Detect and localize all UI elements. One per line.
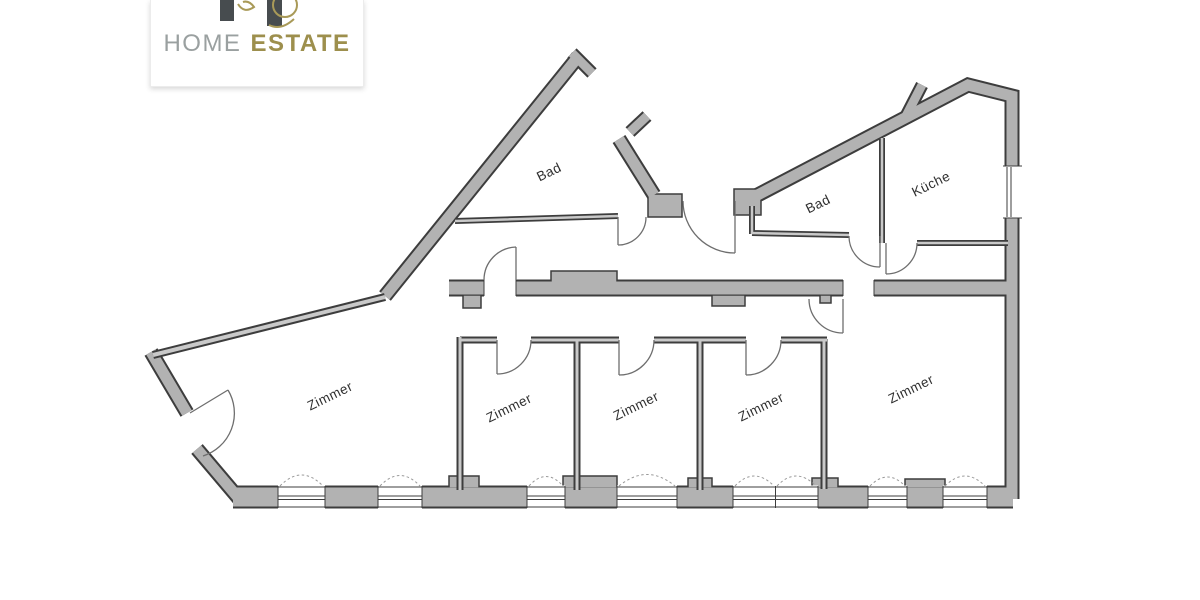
door-zimmer-mid1 xyxy=(497,340,531,374)
window xyxy=(527,486,565,509)
door-zimmer-mid3 xyxy=(746,340,781,375)
logo-word-home: HOME xyxy=(163,30,241,57)
window-swing-arcs xyxy=(280,475,985,487)
window xyxy=(868,486,907,509)
window xyxy=(1003,166,1022,218)
door-swings xyxy=(190,201,917,456)
floorplan-page: Bad Bad Küche Zimmer Zimmer Zimmer Zimme… xyxy=(0,0,1200,600)
door-hall xyxy=(683,201,735,253)
window xyxy=(617,486,677,509)
interior-walls-outline xyxy=(153,138,1008,490)
door-zimmer-right xyxy=(809,299,843,333)
home-estate-logo-mark-icon xyxy=(151,0,363,30)
door-bad-right xyxy=(849,236,880,267)
door-zimmer-mid1-hall xyxy=(484,247,516,280)
window xyxy=(378,486,422,509)
window xyxy=(278,486,325,509)
logo-word-estate: ESTATE xyxy=(250,30,350,57)
logo-text: HOMEESTATE xyxy=(151,30,363,58)
door-bad-top xyxy=(618,217,646,245)
window xyxy=(943,486,987,509)
door-kueche xyxy=(886,243,917,274)
home-estate-logo-card: HOMEESTATE xyxy=(150,0,364,87)
door-entrance xyxy=(190,390,234,456)
floorplan-drawing xyxy=(0,0,1200,600)
door-zimmer-mid2 xyxy=(619,340,654,375)
